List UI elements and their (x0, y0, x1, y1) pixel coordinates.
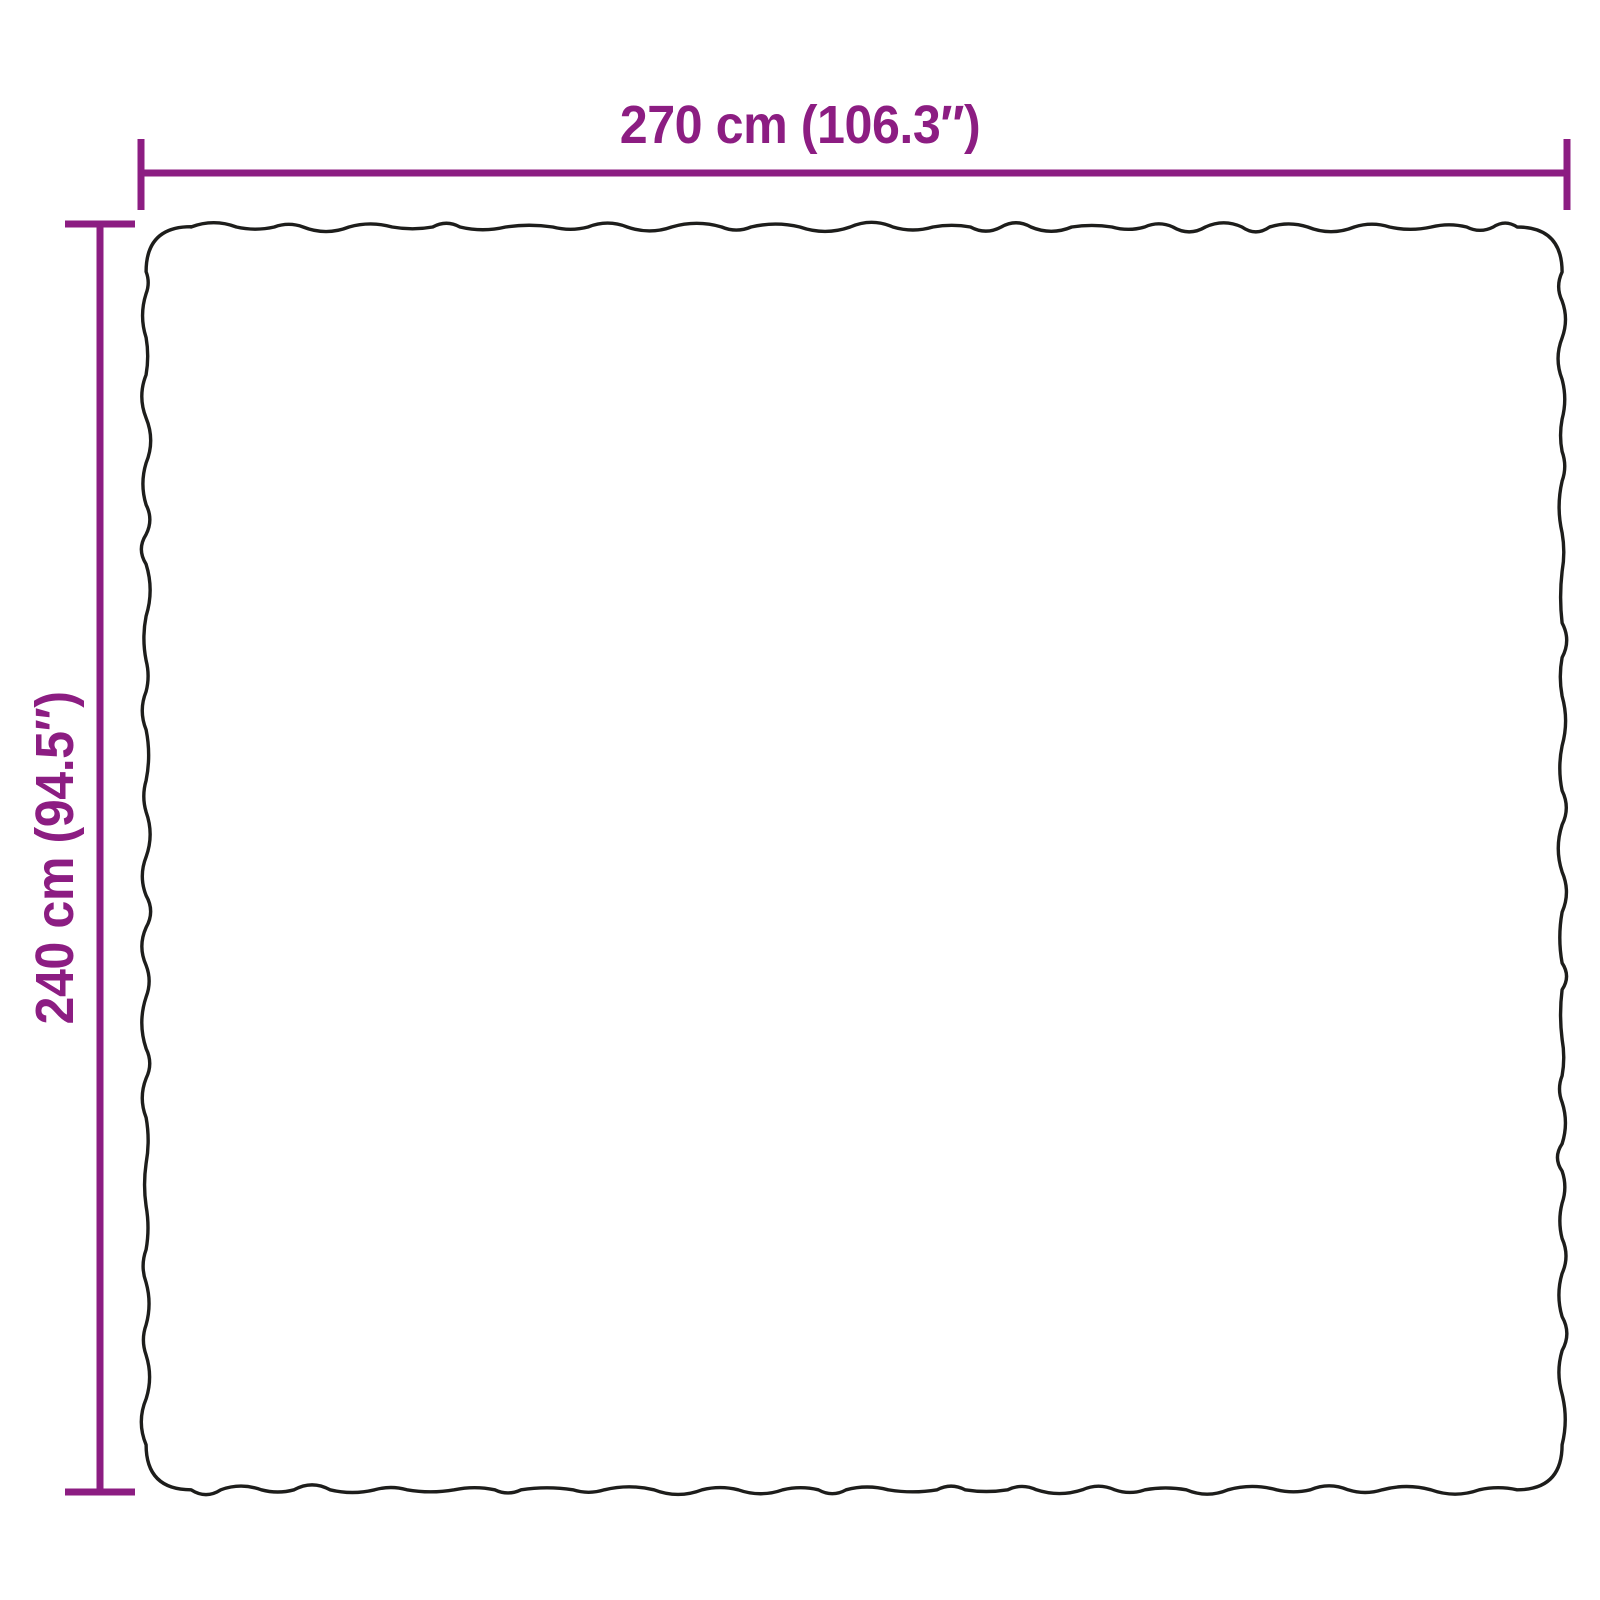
height-dimension-label: 240 cm (94.5″) (28, 691, 82, 1024)
width-dimension-label: 270 cm (106.3″) (620, 98, 980, 152)
diagram-canvas (0, 0, 1600, 1600)
rug-outline-shape (141, 222, 1567, 1494)
dimension-diagram: 270 cm (106.3″) 240 cm (94.5″) (0, 0, 1600, 1600)
